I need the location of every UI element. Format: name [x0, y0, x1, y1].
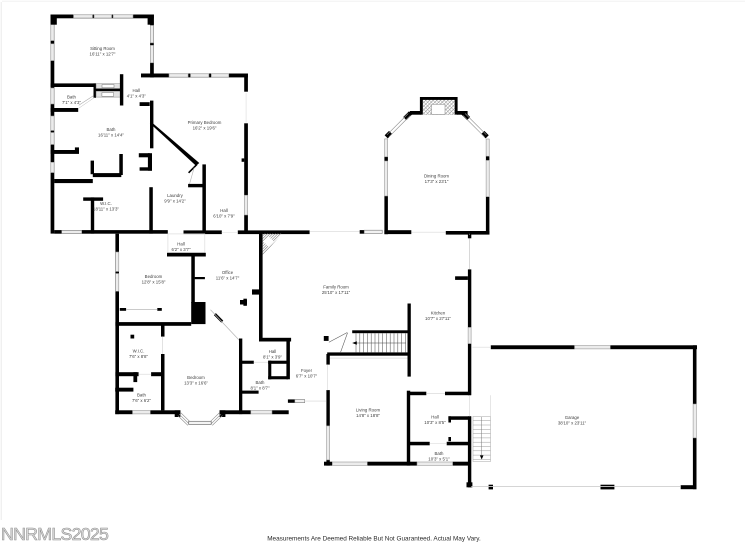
svg-text:14'8" x 18'8": 14'8" x 18'8" — [356, 413, 380, 418]
svg-text:17'3" x 23'1": 17'3" x 23'1" — [425, 179, 449, 184]
svg-text:Hall: Hall — [220, 208, 228, 213]
svg-text:Measurements Are Deemed Reliab: Measurements Are Deemed Reliable But Not… — [267, 536, 481, 543]
svg-text:Living Room: Living Room — [356, 408, 381, 413]
svg-text:W.I.C.: W.I.C. — [100, 201, 112, 206]
svg-text:Hall: Hall — [431, 415, 439, 420]
svg-text:Dining Room: Dining Room — [424, 174, 449, 179]
svg-text:Hall: Hall — [133, 88, 141, 93]
svg-text:Hall: Hall — [269, 349, 277, 354]
svg-text:Bath: Bath — [256, 380, 266, 385]
svg-text:W.I.C.: W.I.C. — [133, 349, 145, 354]
svg-text:Bedroom: Bedroom — [145, 274, 163, 279]
svg-text:Hall: Hall — [177, 242, 185, 247]
svg-text:10'3" x 5'1": 10'3" x 5'1" — [428, 457, 450, 462]
svg-text:NNRMLS2025: NNRMLS2025 — [1, 524, 109, 544]
svg-text:16'2" x 19'6": 16'2" x 19'6" — [193, 126, 217, 131]
svg-text:6'2" x 3'7": 6'2" x 3'7" — [172, 247, 191, 252]
svg-text:Foyer: Foyer — [301, 368, 313, 373]
svg-text:Bedroom: Bedroom — [187, 375, 205, 380]
svg-text:16'11" x 14'4": 16'11" x 14'4" — [98, 133, 124, 138]
svg-text:11'6" x 14'7": 11'6" x 14'7" — [216, 276, 240, 281]
svg-text:13'3" x 16'6": 13'3" x 16'6" — [184, 381, 208, 386]
svg-text:9'9" x 14'2": 9'9" x 14'2" — [164, 199, 186, 204]
svg-text:10'7" x 27'11": 10'7" x 27'11" — [425, 316, 451, 321]
svg-text:Primary Bedroom: Primary Bedroom — [188, 120, 222, 125]
svg-text:16'11" x 12'7": 16'11" x 12'7" — [90, 52, 116, 57]
svg-text:Bath: Bath — [107, 127, 117, 132]
svg-text:Laundry: Laundry — [167, 193, 184, 198]
svg-text:Bath: Bath — [435, 451, 445, 456]
svg-text:7'6" x 8'8": 7'6" x 8'8" — [129, 354, 148, 359]
svg-text:12'8" x 15'8": 12'8" x 15'8" — [142, 280, 166, 285]
svg-text:38'10" x 23'11": 38'10" x 23'11" — [558, 421, 587, 426]
svg-text:7'6" x 6'2": 7'6" x 6'2" — [132, 398, 151, 403]
svg-text:Bath: Bath — [137, 393, 147, 398]
svg-text:6'7" x 10'7": 6'7" x 10'7" — [296, 374, 318, 379]
svg-text:Office: Office — [222, 270, 234, 275]
svg-text:Garage: Garage — [565, 415, 580, 420]
svg-text:Sitting Room: Sitting Room — [90, 46, 115, 51]
svg-text:8'1" x 3'9": 8'1" x 3'9" — [263, 355, 282, 360]
svg-text:4'1" x 4'3": 4'1" x 4'3" — [127, 93, 146, 98]
svg-text:18'11" x 13'3": 18'11" x 13'3" — [93, 207, 119, 212]
svg-text:Bath: Bath — [67, 94, 77, 99]
svg-text:7'1" x 4'3": 7'1" x 4'3" — [62, 100, 81, 105]
svg-text:Kitchen: Kitchen — [431, 311, 446, 316]
svg-text:8'1" x 8'7": 8'1" x 8'7" — [251, 386, 270, 391]
svg-text:Family Room: Family Room — [323, 285, 349, 290]
svg-text:6'10" x 7'9": 6'10" x 7'9" — [213, 214, 235, 219]
svg-text:10'3" x 8'5": 10'3" x 8'5" — [424, 420, 446, 425]
svg-text:25'10" x 17'11": 25'10" x 17'11" — [322, 290, 351, 295]
